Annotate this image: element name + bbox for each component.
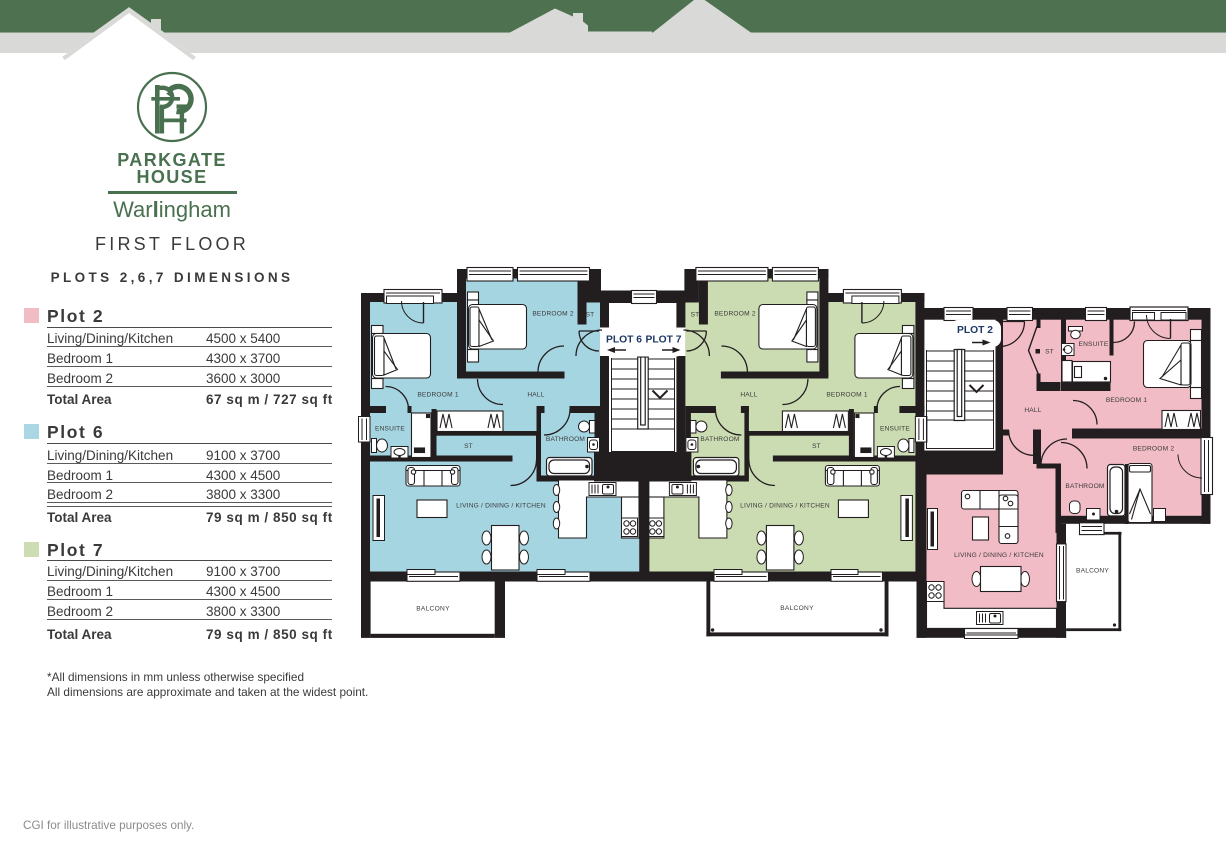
svg-text:ST: ST [812, 443, 821, 450]
svg-text:BATHROOM: BATHROOM [546, 436, 585, 443]
svg-text:LIVING / DINING / KITCHEN: LIVING / DINING / KITCHEN [456, 503, 546, 510]
svg-text:BEDROOM 2: BEDROOM 2 [714, 311, 756, 318]
svg-text:BALCONY: BALCONY [416, 606, 450, 613]
svg-text:ST: ST [1045, 349, 1054, 356]
svg-text:ST: ST [691, 312, 700, 319]
svg-text:BEDROOM 1: BEDROOM 1 [826, 392, 868, 399]
svg-text:PLOT 2: PLOT 2 [957, 325, 993, 336]
svg-text:ENSUITE: ENSUITE [880, 426, 910, 433]
svg-text:PLOT 6: PLOT 6 [606, 335, 642, 346]
svg-text:HALL: HALL [740, 392, 757, 399]
svg-text:ST: ST [464, 443, 473, 450]
svg-text:BATHROOM: BATHROOM [700, 436, 739, 443]
svg-text:ENSUITE: ENSUITE [375, 426, 405, 433]
svg-text:BEDROOM 2: BEDROOM 2 [532, 311, 574, 318]
svg-text:PLOT 7: PLOT 7 [645, 335, 681, 346]
svg-text:HALL: HALL [527, 392, 544, 399]
svg-text:BEDROOM 1: BEDROOM 1 [417, 392, 459, 399]
svg-text:BALCONY: BALCONY [780, 605, 814, 612]
svg-text:BATHROOM: BATHROOM [1065, 483, 1104, 490]
svg-text:BALCONY: BALCONY [1076, 568, 1109, 575]
svg-text:ST: ST [586, 312, 595, 319]
svg-text:LIVING / DINING / KITCHEN: LIVING / DINING / KITCHEN [740, 503, 830, 510]
svg-text:HALL: HALL [1024, 407, 1041, 414]
svg-text:LIVING / DINING / KITCHEN: LIVING / DINING / KITCHEN [954, 552, 1044, 559]
svg-text:BEDROOM 2: BEDROOM 2 [1133, 446, 1175, 453]
svg-text:ENSUITE: ENSUITE [1079, 341, 1109, 348]
svg-text:BEDROOM 1: BEDROOM 1 [1106, 397, 1148, 404]
